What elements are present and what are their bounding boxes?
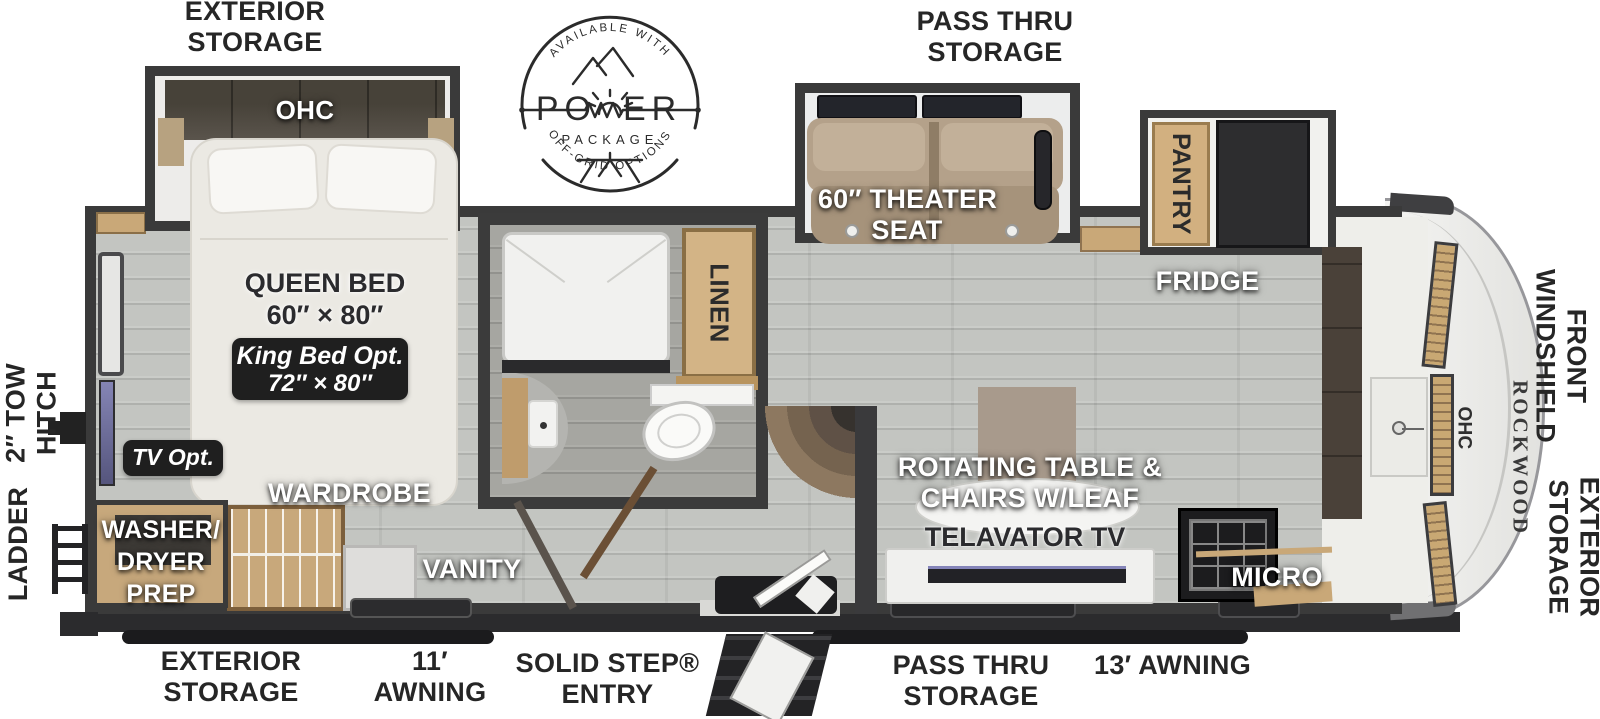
wardrobe-rod [231, 553, 341, 556]
bath-sink-shelf [502, 378, 528, 478]
steps-wall [855, 406, 877, 614]
queen-bed-size: 60″ × 80″ [225, 300, 425, 331]
badge-package: PACKAGE [562, 132, 659, 147]
linen-label: LINEN [704, 233, 733, 373]
vanity-label: VANITY [412, 554, 532, 585]
awning-tube-11ft [122, 630, 494, 644]
shower [502, 232, 670, 364]
power-package-badge: AVAILABLE WITH PO ER PACKAGE OFF-GRID OP… [515, 8, 705, 198]
ladder-label: LADDER [3, 479, 34, 609]
pillow-right [324, 143, 437, 215]
king-bed-option-line2: 72″ × 80″ [232, 370, 408, 397]
exterior-storage-right-line1: EXTERIOR [1574, 427, 1600, 667]
shower-glass-door [502, 360, 670, 373]
bath-faucet [540, 422, 547, 429]
bedroom-steps [765, 406, 857, 498]
toilet-seat-ring [654, 409, 705, 453]
front-counter-dark [1322, 247, 1362, 519]
bed-seam [200, 238, 448, 240]
badge-power-po: PO [536, 90, 597, 128]
exterior-storage-bottom-line2: STORAGE [136, 677, 326, 708]
pass-thru-bottom-line1: PASS THRU [876, 650, 1066, 681]
theater-window-right [922, 95, 1022, 119]
rear-wall-tv [99, 380, 115, 486]
tow-hitch-icon [60, 412, 86, 444]
tow-hitch-label: 2″ TOW HITCH [1, 333, 62, 493]
windshield-blind-mid [1430, 374, 1454, 496]
fridge [1216, 120, 1310, 248]
badge-power-er: ER [623, 90, 682, 128]
washer-dryer-line2: DRYER [86, 546, 236, 578]
nightstand-left [158, 118, 184, 166]
wardrobe-label: WARDROBE [268, 478, 428, 509]
tv-option-badge: TV Opt. [123, 440, 223, 476]
rotating-table-label-line1: ROTATING TABLE & [880, 452, 1180, 483]
exterior-storage-right-label: EXTERIOR STORAGE [1544, 427, 1600, 667]
floorplan-canvas: OHC QUEEN BED 60″ × 80″ King Bed Opt. 72… [0, 0, 1600, 719]
king-bed-option-line1: King Bed Opt. [232, 343, 408, 370]
exterior-storage-bottom-label: EXTERIOR STORAGE [136, 646, 326, 707]
pantry-label: PANTRY [1167, 104, 1195, 264]
awning-11-line1: 11′ [360, 646, 500, 677]
corner-shelf [96, 212, 146, 234]
telavator-tv-screen [928, 566, 1126, 583]
pillow-left [206, 143, 319, 215]
theater-window-left [817, 95, 917, 119]
theater-cupholder-right [1005, 224, 1019, 238]
kitchen-sink-counter [1370, 377, 1428, 477]
pass-thru-bottom-label: PASS THRU STORAGE [876, 650, 1066, 711]
theater-label-line1: 60″ THEATER [800, 184, 1015, 215]
rear-wall-window [98, 252, 124, 376]
exterior-storage-right-line2: STORAGE [1544, 427, 1575, 667]
tow-hitch-line2: HITCH [31, 333, 62, 493]
pass-thru-top-line1: PASS THRU [900, 6, 1090, 37]
kitchen-sink-divider [1402, 428, 1424, 430]
exterior-storage-top-line2: STORAGE [160, 27, 350, 58]
tow-hitch-line1: 2″ TOW [1, 333, 32, 493]
pass-thru-top-line2: STORAGE [900, 37, 1090, 68]
theater-label-line2: SEAT [842, 215, 972, 246]
mountains-icon [573, 48, 633, 84]
pass-thru-bottom-line2: STORAGE [876, 681, 1066, 712]
line-dot-left [519, 107, 525, 113]
queen-bed-label: QUEEN BED [225, 268, 425, 299]
shower-hatch-right [607, 239, 666, 283]
fridge-label: FRIDGE [1140, 266, 1275, 297]
awning-tube-13ft [812, 630, 1248, 644]
washer-dryer-line1: WASHER/ [86, 514, 236, 546]
solid-step-line2: ENTRY [505, 679, 710, 710]
exterior-storage-bottom-line1: EXTERIOR [136, 646, 326, 677]
washer-dryer-label: WASHER/ DRYER PREP [86, 514, 236, 610]
awning-13-label: 13′ AWNING [1080, 650, 1265, 681]
ohc-front-label: OHC [1453, 393, 1474, 463]
solid-step-entry-label: SOLID STEP® ENTRY [505, 648, 710, 709]
washer-dryer-line3: PREP [86, 578, 236, 610]
king-bed-option-badge: King Bed Opt. 72″ × 80″ [232, 338, 408, 400]
rockwood-brand: ROCKWOOD [1508, 353, 1533, 563]
frame-tongue [60, 612, 98, 636]
exterior-storage-top-line1: EXTERIOR [160, 0, 350, 27]
bath-sink [528, 400, 558, 448]
exterior-storage-top-label: EXTERIOR STORAGE [160, 0, 350, 57]
ohc-bedroom-label: OHC [255, 95, 355, 125]
solid-step-line1: SOLID STEP® [505, 648, 710, 679]
entry-door-window [1034, 130, 1052, 210]
awning-11-label: 11′ AWNING [360, 646, 500, 707]
micro-label: MICRO [1212, 562, 1342, 593]
ladder-icon [52, 524, 88, 594]
line-dot-right [695, 107, 701, 113]
pass-thru-top-label: PASS THRU STORAGE [900, 6, 1090, 67]
theater-cushion-left [813, 123, 925, 171]
shower-hatch-left [506, 239, 565, 283]
rotating-table-label-line2: CHAIRS W/LEAF [880, 483, 1180, 514]
bedroom-bottom-window [350, 598, 472, 618]
awning-11-line2: AWNING [360, 677, 500, 708]
wardrobe-cabinet [227, 505, 345, 611]
toilet-platform [650, 384, 754, 406]
telavator-tv-label: TELAVATOR TV [900, 522, 1150, 553]
